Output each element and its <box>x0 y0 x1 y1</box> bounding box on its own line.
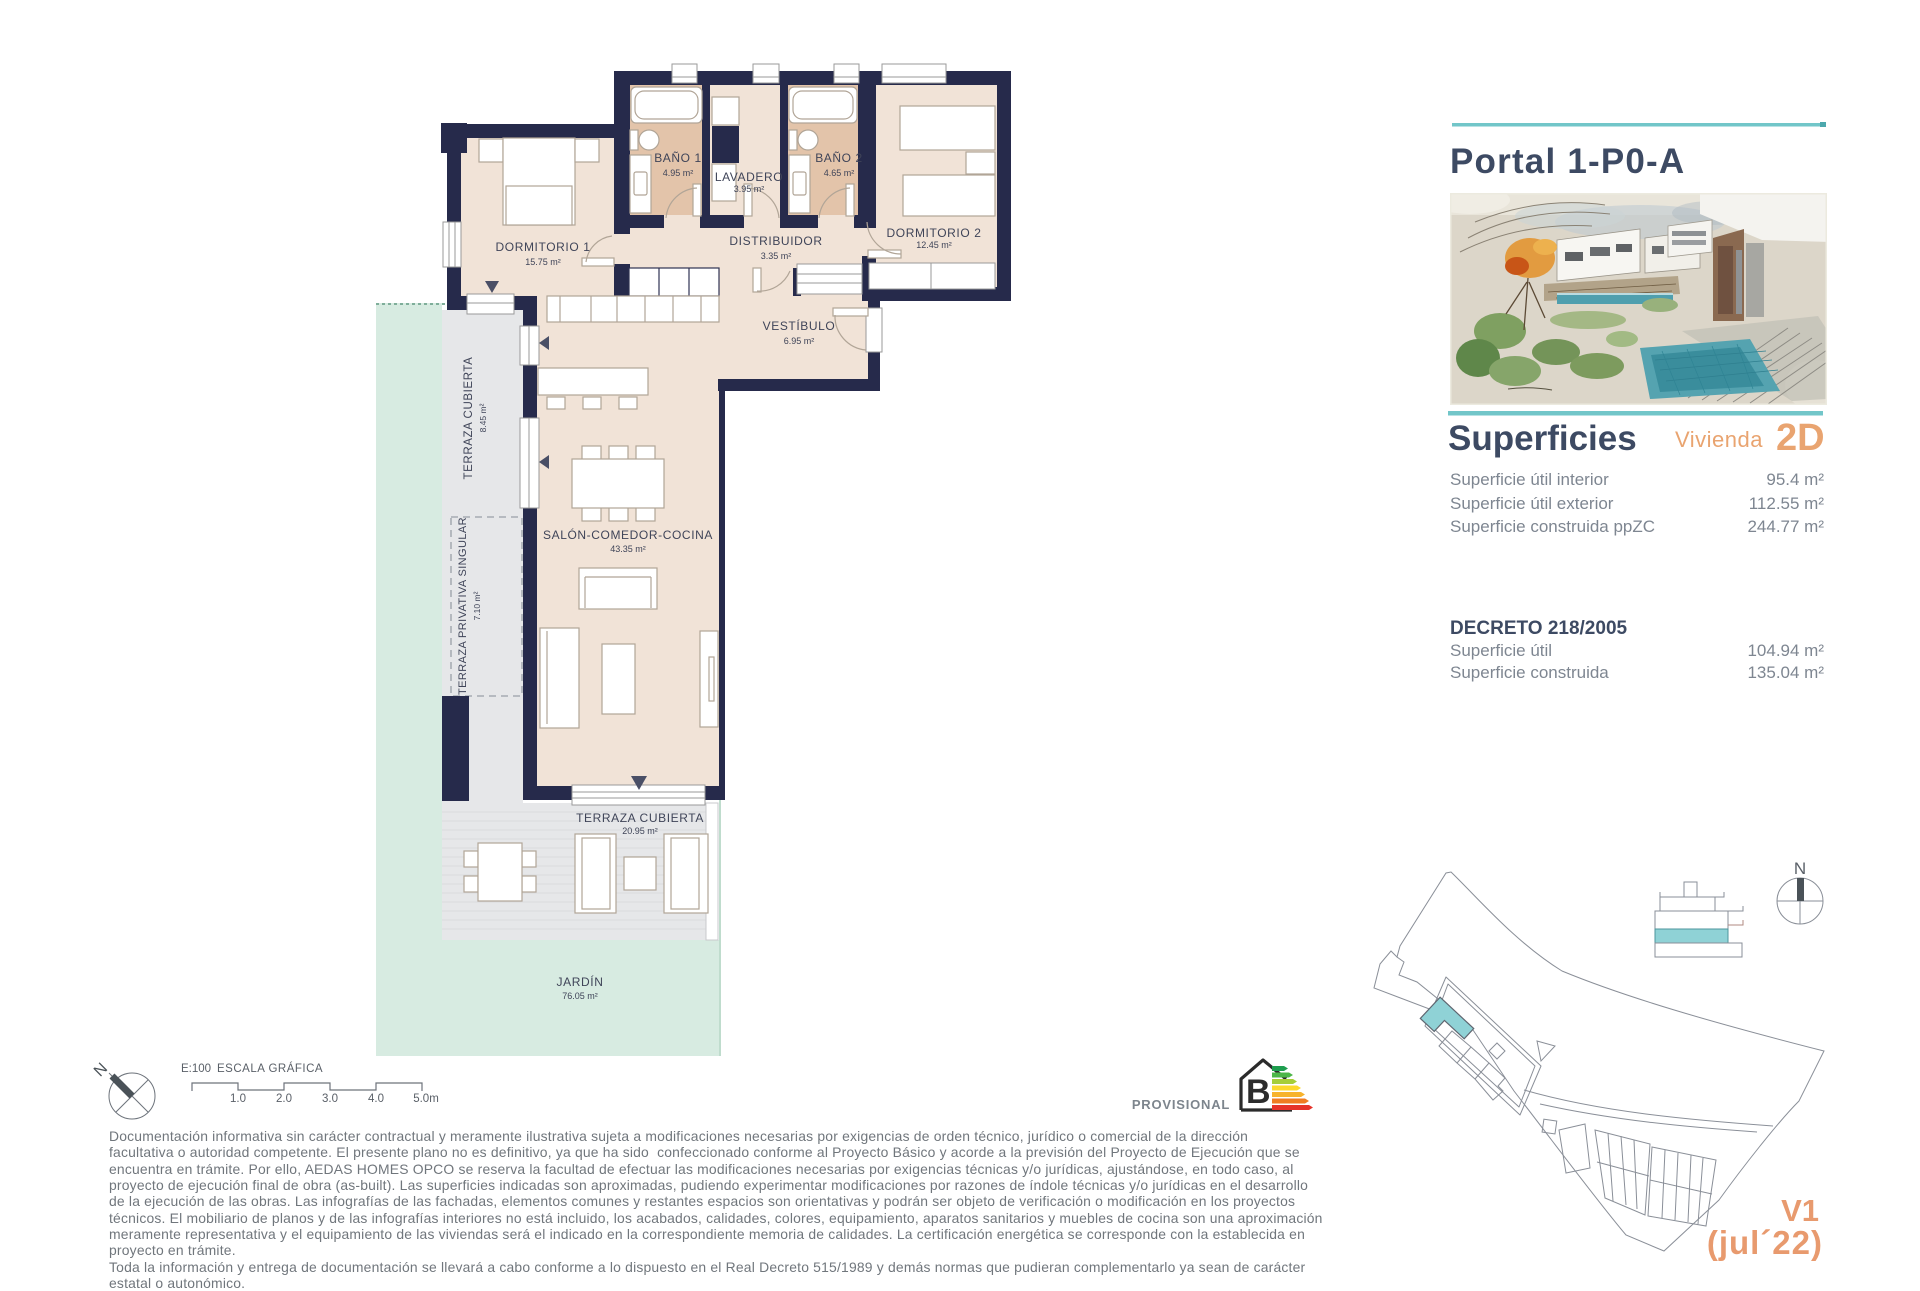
svg-text:12.45 m²: 12.45 m² <box>916 240 952 250</box>
svg-text:Superficie útil interior: Superficie útil interior <box>1450 470 1609 489</box>
svg-text:ESCALA GRÁFICA: ESCALA GRÁFICA <box>217 1062 323 1075</box>
svg-text:2.0: 2.0 <box>276 1093 292 1105</box>
svg-text:V1: V1 <box>1781 1193 1819 1228</box>
svg-text:N: N <box>1794 859 1806 878</box>
svg-text:5.0m: 5.0m <box>413 1093 439 1105</box>
svg-text:E:100: E:100 <box>181 1063 211 1075</box>
svg-text:Superficies: Superficies <box>1448 419 1637 458</box>
svg-text:TERRAZA CUBIERTA: TERRAZA CUBIERTA <box>463 357 475 480</box>
svg-text:Superficie construida: Superficie construida <box>1450 663 1609 682</box>
svg-text:43.35 m²: 43.35 m² <box>610 544 646 554</box>
svg-text:SALÓN-COMEDOR-COCINA: SALÓN-COMEDOR-COCINA <box>543 527 713 542</box>
svg-text:1.0: 1.0 <box>230 1093 246 1105</box>
svg-text:6.95 m²: 6.95 m² <box>784 336 815 346</box>
svg-text:112.55 m²: 112.55 m² <box>1749 494 1825 513</box>
svg-text:DORMITORIO 2: DORMITORIO 2 <box>887 226 982 240</box>
svg-text:104.94 m²: 104.94 m² <box>1747 641 1824 660</box>
svg-text:7.10 m²: 7.10 m² <box>472 591 482 620</box>
svg-text:DECRETO 218/2005: DECRETO 218/2005 <box>1450 618 1628 639</box>
svg-text:4.0: 4.0 <box>368 1093 384 1105</box>
svg-text:4.65 m²: 4.65 m² <box>824 168 855 178</box>
svg-text:3.95 m²: 3.95 m² <box>734 184 765 194</box>
svg-text:LAVADERO: LAVADERO <box>715 170 783 184</box>
svg-text:TERRAZA PRIVATIVA SINGULAR: TERRAZA PRIVATIVA SINGULAR <box>457 517 469 695</box>
svg-text:B: B <box>1246 1073 1271 1111</box>
svg-text:Portal 1-P0-A: Portal 1-P0-A <box>1450 142 1685 181</box>
svg-text:BAÑO 2: BAÑO 2 <box>815 151 863 165</box>
svg-text:20.95 m²: 20.95 m² <box>622 826 658 836</box>
svg-text:PROVISIONAL: PROVISIONAL <box>1132 1097 1230 1112</box>
svg-text:DORMITORIO 1: DORMITORIO 1 <box>496 240 591 254</box>
svg-text:Superficie útil exterior: Superficie útil exterior <box>1450 494 1614 513</box>
svg-text:135.04 m²: 135.04 m² <box>1747 663 1824 682</box>
svg-text:2D: 2D <box>1776 417 1825 459</box>
svg-text:BAÑO 1: BAÑO 1 <box>654 151 702 165</box>
svg-text:76.05 m²: 76.05 m² <box>562 991 598 1001</box>
svg-text:3.35 m²: 3.35 m² <box>761 251 792 261</box>
svg-text:Vivienda: Vivienda <box>1675 427 1763 452</box>
svg-text:4.95 m²: 4.95 m² <box>663 168 694 178</box>
svg-text:Superficie útil: Superficie útil <box>1450 641 1552 660</box>
svg-text:244.77 m²: 244.77 m² <box>1747 517 1824 536</box>
svg-text:(jul´22): (jul´22) <box>1707 1224 1823 1261</box>
svg-text:JARDÍN: JARDÍN <box>557 974 604 989</box>
svg-text:DISTRIBUIDOR: DISTRIBUIDOR <box>729 234 822 248</box>
svg-text:3.0: 3.0 <box>322 1093 338 1105</box>
svg-text:8.45 m²: 8.45 m² <box>478 403 488 432</box>
svg-text:VESTÍBULO: VESTÍBULO <box>763 318 836 333</box>
svg-text:95.4 m²: 95.4 m² <box>1766 470 1824 489</box>
svg-text:TERRAZA CUBIERTA: TERRAZA CUBIERTA <box>576 811 704 825</box>
svg-text:Superficie construida ppZC: Superficie construida ppZC <box>1450 517 1655 536</box>
svg-text:15.75 m²: 15.75 m² <box>525 257 561 267</box>
